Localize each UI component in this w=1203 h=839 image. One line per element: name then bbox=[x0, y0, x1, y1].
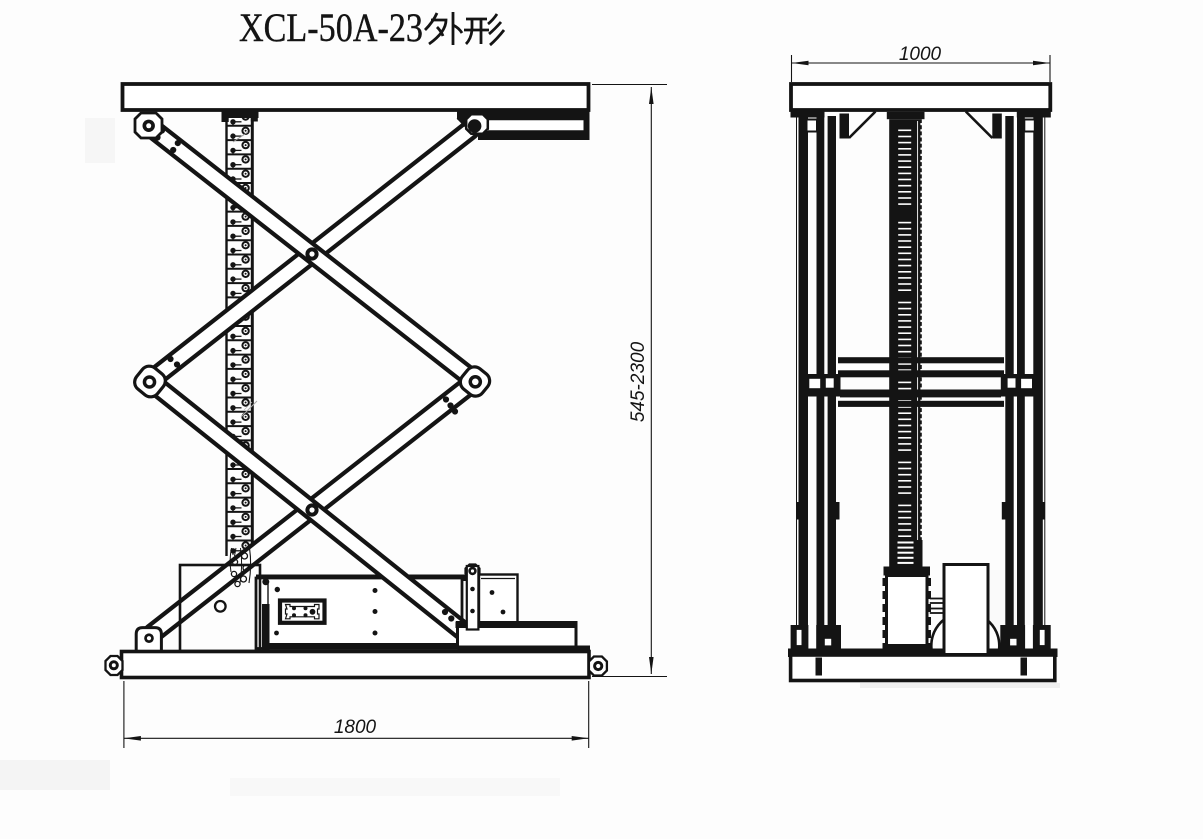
svg-text:545-2300: 545-2300 bbox=[628, 341, 649, 422]
svg-text:XCL-50A-23: XCL-50A-23 bbox=[239, 5, 423, 50]
svg-text:1800: 1800 bbox=[334, 717, 377, 738]
svg-text:1000: 1000 bbox=[899, 44, 942, 65]
